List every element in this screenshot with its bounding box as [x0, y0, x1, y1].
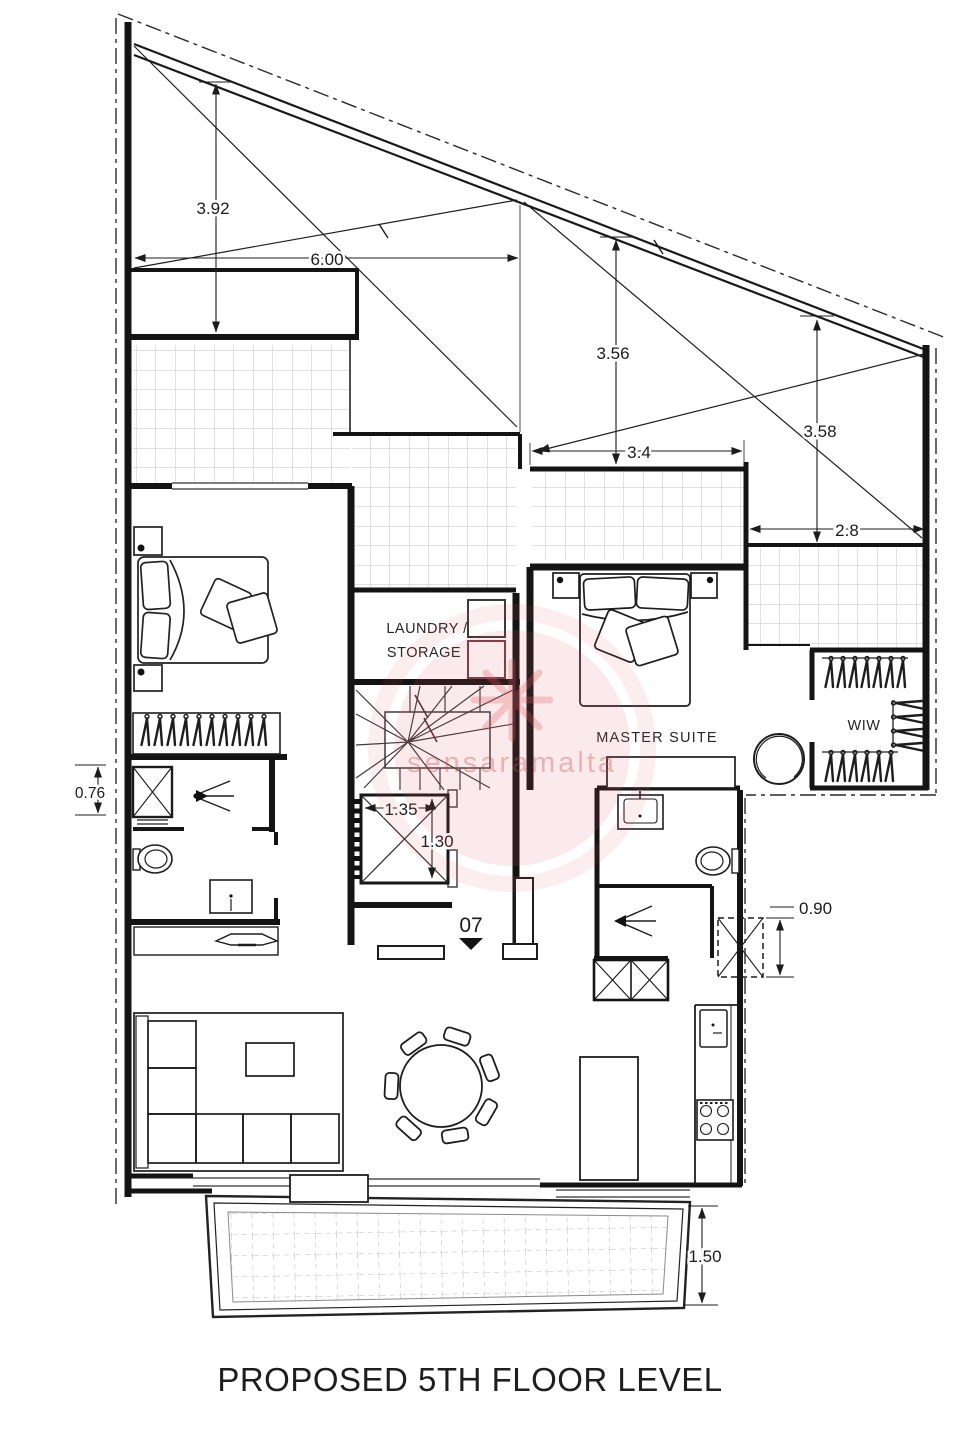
shower-head-icon — [193, 781, 234, 811]
round-chair — [754, 734, 804, 784]
kitchen — [580, 1005, 738, 1183]
pillow — [583, 577, 636, 611]
dim-left-void-height: 3.92 — [196, 199, 229, 218]
watermark-text: sensaramalta — [407, 747, 617, 779]
sofa-back — [136, 1016, 148, 1168]
unit-marker: 07 — [459, 914, 483, 950]
stove-hob — [697, 1100, 733, 1140]
watermark: sensaramalta — [376, 612, 648, 884]
dim-right-void-height: 3.58 — [803, 422, 836, 441]
watermark-logo-icon — [474, 662, 550, 738]
pillow — [140, 561, 170, 610]
kitchen-sink — [700, 1010, 727, 1047]
storage-unit-xx — [594, 960, 668, 1000]
page-title: PROPOSED 5TH FLOOR LEVEL — [217, 1361, 722, 1398]
floor-plan-svg: 3.92 6.00 3.56 3.4 3.58 2.8 0.76 1.35 1.… — [0, 0, 975, 1439]
bathroom-left — [133, 767, 252, 913]
toilet — [133, 845, 172, 873]
nightstand — [134, 527, 162, 555]
rear-terrace-tiles — [228, 1212, 668, 1302]
unit-number: 07 — [459, 914, 482, 937]
coffee-table — [246, 1043, 294, 1076]
dim-shaft-width: 0.90 — [799, 899, 832, 918]
living-room-furniture — [134, 1013, 343, 1171]
bedroom2-furniture — [134, 527, 278, 691]
pillow — [636, 577, 689, 611]
sliding-door-panel — [290, 1175, 368, 1202]
dim-center-terrace-width: 3.4 — [627, 443, 651, 462]
tv-sideboard — [134, 927, 278, 955]
dim-shower-width: 0.76 — [75, 785, 105, 802]
sofa-outline — [134, 1013, 343, 1171]
dining-table — [400, 1045, 482, 1127]
dim-rear-terrace-depth: 1.50 — [688, 1247, 721, 1266]
dim-center-void-height: 3.56 — [596, 344, 629, 363]
unit-arrow-icon — [459, 938, 483, 950]
nightstand — [553, 573, 579, 598]
dim-right-terrace-width: 2.8 — [835, 521, 859, 540]
roof-slope-lines — [134, 44, 926, 358]
kitchen-island — [580, 1057, 638, 1180]
label-wiw: WIW — [848, 718, 881, 734]
floor-plan-page: 3.92 6.00 3.56 3.4 3.58 2.8 0.76 1.35 1.… — [0, 0, 975, 1439]
vanity-sink — [210, 880, 252, 913]
pillow — [140, 612, 170, 659]
dim-left-void-width: 6.00 — [310, 250, 343, 269]
toilet — [696, 847, 739, 875]
nightstand — [134, 665, 162, 691]
dining-set — [384, 1026, 500, 1144]
shower-head-icon — [614, 906, 656, 936]
bedroom2-wardrobe — [133, 713, 280, 754]
nightstand — [691, 573, 717, 598]
